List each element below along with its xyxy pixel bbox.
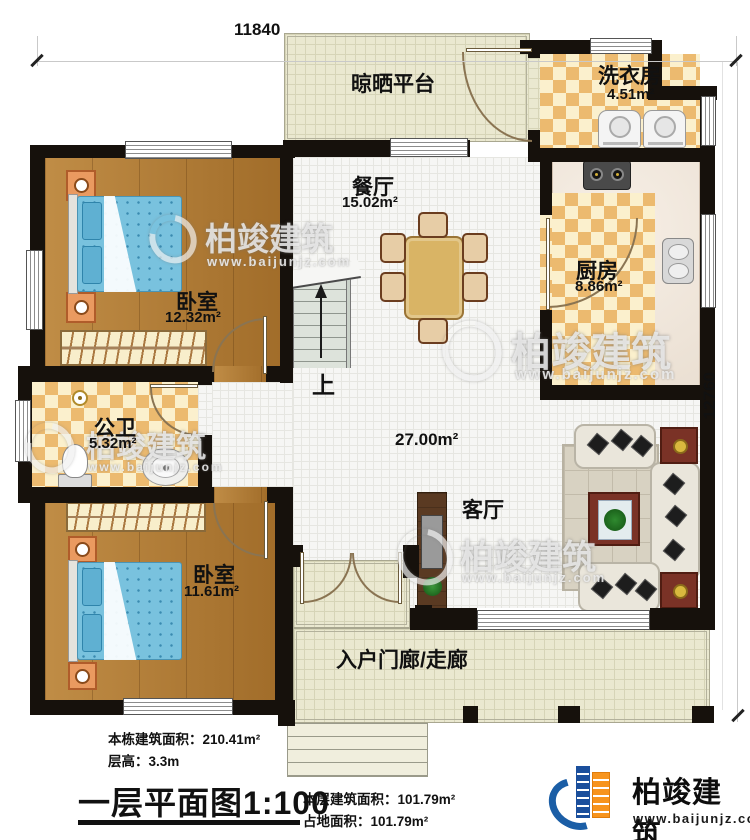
wall bbox=[30, 503, 45, 715]
door-leaf bbox=[264, 501, 268, 559]
brand-website: www.baijunjz.com bbox=[633, 811, 750, 826]
sofa-top bbox=[574, 424, 656, 469]
living-area: 27.00m² bbox=[395, 430, 458, 450]
pillow bbox=[82, 202, 102, 240]
dimension-top-value: 11840 bbox=[234, 20, 280, 40]
floor-plan-canvas: 柏竣建筑 www.baijunjz.com 柏竣建筑 www.baijunjz.… bbox=[0, 0, 750, 840]
pillow bbox=[82, 246, 102, 284]
dining-chair bbox=[380, 233, 406, 263]
bathroom-area: 5.32m² bbox=[89, 435, 137, 452]
stove bbox=[583, 160, 631, 190]
dining-chair bbox=[418, 212, 448, 238]
nightstand bbox=[66, 292, 96, 323]
window bbox=[123, 698, 233, 715]
brand-logo-building-icon bbox=[592, 772, 610, 818]
entry-steps bbox=[287, 723, 428, 777]
sofa-right bbox=[650, 462, 700, 580]
building-total-area-text: 本栋建筑面积：210.41m² bbox=[108, 728, 260, 748]
plan-title: 一层平面图1:100 bbox=[78, 778, 330, 824]
window bbox=[701, 214, 716, 308]
end-table bbox=[660, 572, 698, 609]
door-leaf bbox=[150, 384, 198, 388]
window bbox=[26, 250, 43, 330]
dining-area: 15.02m² bbox=[342, 194, 398, 211]
kitchen-sink bbox=[662, 238, 694, 284]
hallway-floor bbox=[212, 382, 293, 487]
dimension-tick-icon bbox=[731, 709, 744, 722]
window bbox=[590, 38, 652, 54]
watermark-website: www.baijunjz.com bbox=[515, 366, 676, 383]
living-label: 客厅 bbox=[462, 494, 504, 524]
watermark-website: www.baijunjz.com bbox=[88, 460, 224, 474]
washing-machine bbox=[643, 110, 686, 148]
pillow bbox=[82, 568, 102, 606]
porch-post bbox=[692, 706, 714, 723]
dimension-right-value: 12760 bbox=[700, 372, 720, 419]
floor-area-text: 本层建筑面积：101.79m² bbox=[303, 788, 455, 808]
watermark-website: www.baijunjz.com bbox=[462, 570, 606, 585]
watermark-website: www.baijunjz.com bbox=[207, 254, 351, 269]
dimension-line-top bbox=[38, 61, 737, 62]
bed bbox=[68, 560, 182, 662]
wall bbox=[528, 148, 715, 162]
wall bbox=[700, 86, 715, 630]
porch-post bbox=[278, 708, 295, 726]
floor-height-text: 层高：3.3m bbox=[108, 750, 179, 770]
wardrobe bbox=[66, 502, 206, 532]
plan-title-underline bbox=[78, 820, 300, 825]
plan-title-text: 一层平面图 bbox=[78, 785, 243, 821]
wall bbox=[540, 385, 715, 400]
table-lamp bbox=[673, 439, 688, 454]
stair-rail bbox=[346, 278, 351, 368]
laundry-area: 4.51m² bbox=[607, 86, 655, 103]
window bbox=[125, 141, 232, 159]
bedroom-top-area: 12.32m² bbox=[165, 309, 221, 326]
stair-arrow-head-icon bbox=[315, 284, 327, 298]
window bbox=[390, 138, 468, 157]
porch-post bbox=[415, 605, 432, 628]
brand-company-name: 柏竣建筑 bbox=[632, 769, 746, 840]
room-porch-floor bbox=[293, 628, 710, 723]
wall bbox=[650, 608, 715, 630]
door-leaf bbox=[466, 48, 532, 52]
stair-arrow-shaft bbox=[320, 298, 322, 358]
wardrobe bbox=[60, 330, 207, 366]
entry-door-leaf bbox=[300, 552, 304, 604]
ceiling-lamp bbox=[72, 390, 88, 406]
bedroom-bottom-area: 11.61m² bbox=[184, 583, 239, 600]
plant bbox=[604, 509, 626, 531]
nightstand bbox=[68, 662, 97, 690]
platform-label: 晾晒平台 bbox=[351, 68, 435, 98]
dining-table bbox=[404, 236, 464, 320]
door-leaf bbox=[546, 218, 550, 310]
doorway-gap bbox=[214, 487, 267, 503]
porch-post bbox=[463, 706, 478, 723]
washing-machine bbox=[598, 110, 641, 148]
door-leaf bbox=[263, 316, 267, 374]
end-table bbox=[660, 427, 698, 464]
dimension-line-right bbox=[737, 62, 738, 722]
porch-label: 入户门廊/走廊 bbox=[336, 644, 468, 674]
pillow bbox=[82, 614, 102, 652]
brand-logo: 柏竣建筑 www.baijunjz.com bbox=[546, 763, 746, 835]
dining-chair bbox=[462, 272, 488, 302]
brand-logo-building-icon bbox=[576, 766, 590, 818]
window bbox=[701, 96, 716, 146]
wall bbox=[275, 490, 293, 715]
table-lamp bbox=[673, 584, 688, 599]
porch-post bbox=[558, 706, 580, 723]
dining-chair bbox=[462, 233, 488, 263]
dining-chair bbox=[380, 272, 406, 302]
eave-line bbox=[722, 62, 723, 710]
nightstand bbox=[68, 536, 97, 563]
stairs-up-label: 上 bbox=[312, 366, 335, 400]
window-sliding-door bbox=[477, 610, 650, 630]
footprint-area-text: 占地面积：101.79m² bbox=[303, 810, 428, 830]
kitchen-area: 8.86m² bbox=[575, 278, 623, 295]
